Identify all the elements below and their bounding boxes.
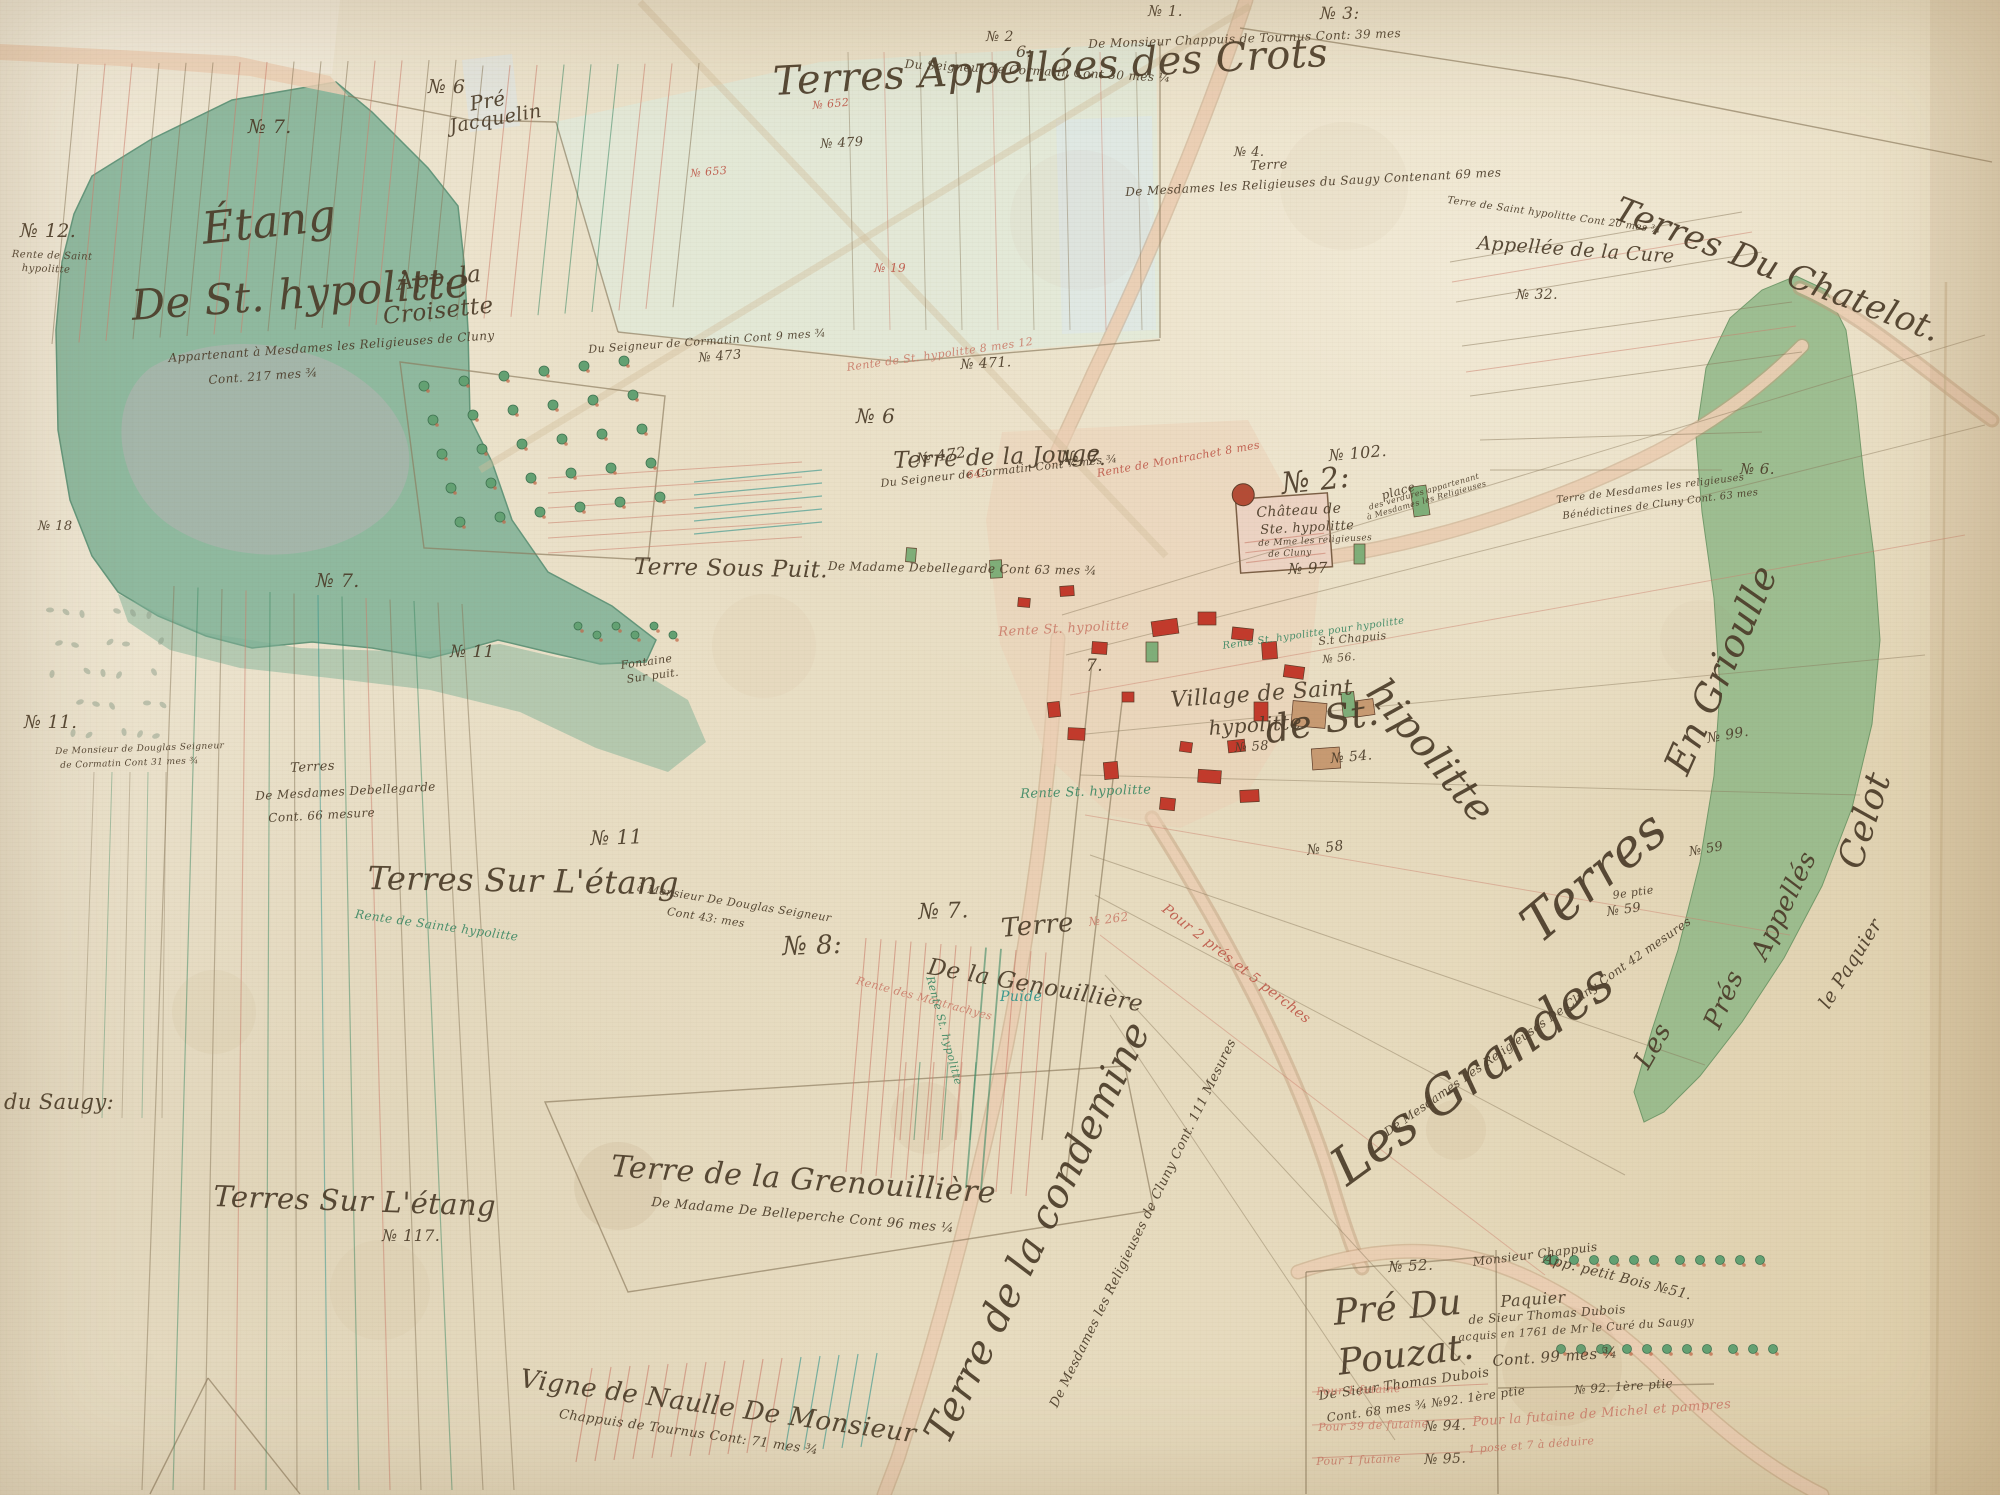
tree-shadow-dot [502,520,506,524]
hatch-line [633,1365,649,1459]
hatch-line [1450,212,1742,262]
bosquet-mark [121,728,127,737]
hatch-line [652,1364,668,1458]
tree-shadow-dot [1762,1263,1766,1267]
road-condemine [884,638,1058,1495]
tree-shadow-dot [635,398,639,402]
village-building [1198,769,1222,784]
tree-icon [1703,1345,1712,1354]
tree-shadow-dot [506,379,510,383]
bosquet-mark [143,701,151,706]
tree-icon [1550,1256,1559,1265]
hatch-line [1452,232,1752,282]
hatch-line [614,1366,630,1460]
hatch-line [266,592,270,1490]
hatch-line [671,1363,687,1457]
hatch-line [846,938,866,1172]
tree-shadow-dot [1629,1352,1633,1356]
tree-icon [1729,1345,1738,1354]
tree-icon [593,631,601,639]
hatch-line [823,1355,839,1449]
tree-shadow-dot [524,447,528,451]
tree-shadow-dot [662,500,666,504]
hatch-line [1105,975,1465,1365]
hatch-line [576,1368,592,1462]
tree-icon [1630,1256,1639,1265]
bosquet-mark [136,729,144,738]
tree-shadow-dot [1636,1263,1640,1267]
tree-icon [1570,1256,1579,1265]
village-building [1311,747,1340,770]
tree-shadow-dot [475,418,479,422]
tree-shadow-dot [1656,1263,1660,1267]
tree-icon [1676,1256,1685,1265]
hatch-line [366,598,390,1490]
meadow-strip-grioulle [1634,276,1880,1122]
village-building [1198,612,1216,625]
village-building [906,548,917,563]
tree-icon [1749,1345,1758,1354]
tree-shadow-dot [1755,1352,1759,1356]
tree-icon [1769,1345,1778,1354]
hatch-line [747,1359,763,1453]
hatch-line [142,586,174,1490]
village-building [1283,665,1304,680]
hatch-line [804,1356,820,1450]
hatch-line [1456,252,1762,302]
village-building [1231,627,1253,641]
hatch-line [1026,952,1046,1196]
tree-icon [1590,1256,1599,1265]
tree-shadow-dot [555,408,559,412]
tree-shadow-dot [426,389,430,393]
tree-icon [1716,1256,1725,1265]
hatch-line [548,492,802,508]
tree-icon [1736,1256,1745,1265]
bosquet-mark [61,608,70,617]
hatch-line [548,477,802,493]
hatch-line [318,595,328,1490]
tree-shadow-dot [1742,1263,1746,1267]
bosquet-mark [70,641,79,648]
hatch-line [690,1362,706,1456]
village-building [1151,618,1179,636]
hatch-line [538,65,564,316]
tree-shadow-dot [435,423,439,427]
hatch-line [142,772,148,1118]
tree-icon [1683,1345,1692,1354]
hatch-line [842,1354,858,1448]
bosquet-mark [75,698,84,705]
hatch-line [1095,895,1625,1175]
hatch-line [861,1353,877,1447]
hatch-line [1090,855,1705,1065]
hatch-line [438,603,483,1491]
bosquet-mark [112,607,121,614]
tree-icon [1756,1256,1765,1265]
village-building [990,560,1003,579]
hatch-line [162,772,166,1118]
hatch-line [694,483,822,495]
tree-shadow-dot [484,452,488,456]
village-building [1341,691,1357,717]
tree-shadow-dot [1735,1352,1739,1356]
tree-shadow-dot [1596,1263,1600,1267]
tree-shadow-dot [586,369,590,373]
tree-shadow-dot [604,437,608,441]
tree-shadow-dot [656,629,660,633]
village-building [1179,741,1192,753]
village-building [1103,761,1118,779]
village-building [1047,701,1061,717]
hatch-line [294,594,297,1491]
hatch-line [876,940,896,1176]
tree-shadow-dot [1576,1263,1580,1267]
tree-shadow-dot [599,638,603,642]
hatch-line [728,1360,744,1454]
map-canvas: № 1.№ 3:№ 2De Monsieur Chappuis de Tourn… [0,0,2000,1495]
tree-icon [669,631,677,639]
tree-shadow-dot [546,374,550,378]
tree-shadow-dot [1722,1263,1726,1267]
tree-shadow-dot [466,384,470,388]
tree-shadow-dot [1616,1263,1620,1267]
tree-shadow-dot [453,491,457,495]
village-building [1261,641,1277,659]
tree-shadow-dot [618,629,622,633]
hatch-line [970,1062,976,1140]
hatch-line [82,772,94,1118]
tree-shadow-dot [1702,1263,1706,1267]
village-building [1410,485,1430,517]
bosquet-mark [151,732,160,739]
tree-shadow-dot [1682,1263,1686,1267]
village-building [1060,586,1075,597]
tree-shadow-dot [542,515,546,519]
village-building [1227,739,1245,753]
hatch-line [548,522,802,538]
village-building [1092,641,1108,654]
chateau-enclosure [1236,493,1333,573]
tree-shadow-dot [1669,1352,1673,1356]
hatch-line [548,537,802,553]
tree-shadow-dot [1556,1263,1560,1267]
manuscript-map-page: { "map": { "palette": { "parchment": "#e… [0,0,2000,1495]
hatch-line [390,600,421,1491]
tree-shadow-dot [1649,1352,1653,1356]
tree-shadow-dot [675,638,679,642]
tree-icon [1643,1345,1652,1354]
tree-shadow-dot [582,510,586,514]
bosquet-mark [79,610,85,619]
bosquet-mark [115,670,123,679]
tree-shadow-dot [515,413,519,417]
hatch-line [122,772,130,1118]
bosquet-mark [122,642,130,647]
bosquet-mark [84,731,93,740]
village-building [1291,701,1327,729]
tree-shadow-dot [637,638,641,642]
hatch-line [462,604,514,1490]
village-building [1354,544,1365,564]
tree-icon [1696,1256,1705,1265]
bosquet-mark [150,667,158,676]
hatch-line [694,509,822,521]
hatch-line [785,1357,801,1451]
bosquet-mark [105,638,114,647]
tree-icon [1650,1256,1659,1265]
map-artwork [0,0,2000,1495]
tree-shadow-dot [580,629,584,633]
village-building [1254,702,1268,721]
tree-shadow-dot [444,457,448,461]
tree-shadow-dot [564,442,568,446]
bosquet-mark [46,608,54,613]
bosquet-mark [54,639,63,646]
tree-shadow-dot [493,486,497,490]
tree-shadow-dot [644,432,648,436]
hatch-line [766,1358,782,1452]
tree-shadow-dot [626,364,630,368]
tree-shadow-dot [1709,1352,1713,1356]
bosquet-mark [49,670,55,679]
bosquet-mark [82,667,91,676]
tree-shadow-dot [595,403,599,407]
tree-shadow-dot [653,466,657,470]
tree-icon [1663,1345,1672,1354]
hatch-line [709,1361,725,1455]
tree-shadow-dot [1775,1352,1779,1356]
bosquet-mark [158,701,167,710]
village-building [1159,797,1175,811]
hatch-line [102,772,112,1118]
bosquet-mark [70,729,76,738]
tree-shadow-dot [613,471,617,475]
tree-shadow-dot [533,481,537,485]
village-building [1240,790,1260,803]
bosquet-mark [108,701,116,710]
tree-icon [1610,1256,1619,1265]
tree-shadow-dot [1689,1352,1693,1356]
tree-icon [574,622,582,630]
village-building [1018,597,1031,607]
tree-icon [650,622,658,630]
right-edge-shading [1930,0,2000,1495]
hatch-line [414,601,452,1490]
hatch-line [1100,935,1545,1275]
tree-icon [1623,1345,1632,1354]
hatch-line [342,597,359,1491]
village-building [1068,728,1086,741]
tree-shadow-dot [573,476,577,480]
hatch-line [951,946,971,1186]
village-building [1122,692,1134,702]
tree-shadow-dot [462,525,466,529]
hatch-line [595,1367,611,1461]
hatch-line [861,939,881,1174]
tree-icon [612,622,620,630]
bosquet-mark [100,669,106,678]
tree-icon [631,631,639,639]
tree-shadow-dot [622,505,626,509]
bosquet-mark [91,700,100,707]
village-building [1146,642,1158,662]
